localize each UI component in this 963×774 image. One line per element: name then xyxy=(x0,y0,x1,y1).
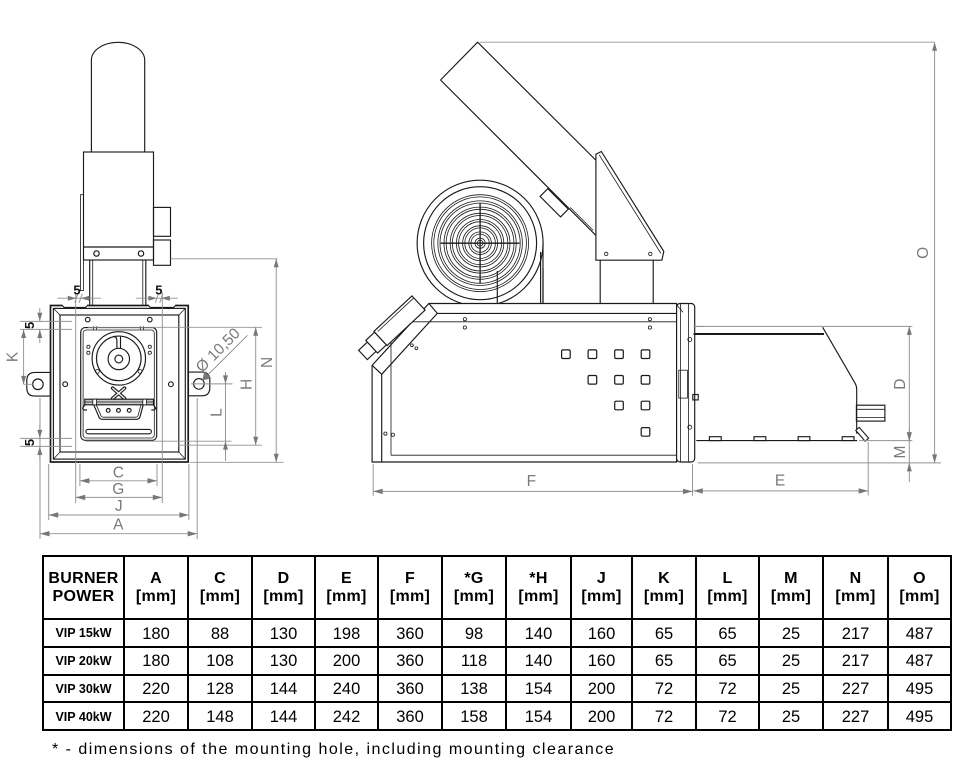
svg-text:E: E xyxy=(775,473,785,490)
svg-text:A: A xyxy=(113,517,124,534)
svg-text:G: G xyxy=(112,481,124,498)
svg-text:Ø 10,50: Ø 10,50 xyxy=(193,325,244,376)
svg-text:J: J xyxy=(115,498,123,515)
svg-text:H: H xyxy=(239,379,256,390)
svg-text:C: C xyxy=(113,465,124,482)
svg-text:M: M xyxy=(892,446,909,459)
svg-text:5: 5 xyxy=(73,283,80,298)
svg-text:F: F xyxy=(527,473,536,490)
svg-text:L: L xyxy=(208,408,225,417)
svg-text:5: 5 xyxy=(155,283,162,298)
svg-text:K: K xyxy=(5,351,22,362)
svg-text:5: 5 xyxy=(22,322,37,329)
svg-text:N: N xyxy=(259,357,276,368)
svg-text:5: 5 xyxy=(22,439,37,446)
svg-text:O: O xyxy=(915,247,932,259)
svg-text:D: D xyxy=(892,379,909,390)
